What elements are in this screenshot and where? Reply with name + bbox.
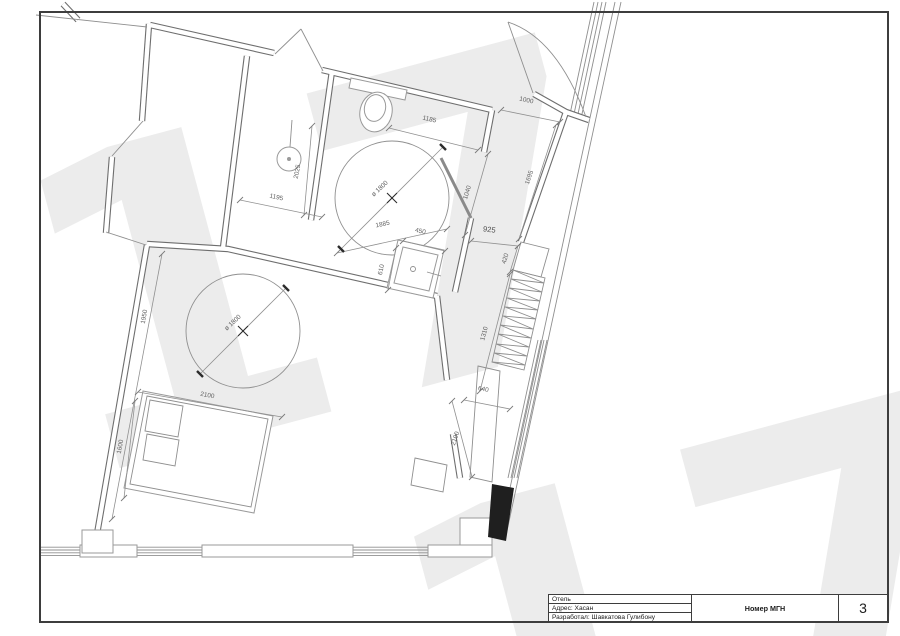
wall-pier <box>428 545 492 557</box>
project-developer: Разработал: Шавкатова Гулибону <box>549 613 691 621</box>
wall-column <box>82 530 113 553</box>
door-leaf-top-left <box>36 15 147 27</box>
sheet-title: Номер МГН <box>692 595 839 621</box>
sheet-number: 3 <box>839 595 887 621</box>
drawing-sheet: 17 17 <box>0 0 900 636</box>
dim-label-925: 925 <box>482 224 496 234</box>
title-block: Отель Адрес: Хасан Разработал: Шавкатова… <box>548 594 888 622</box>
title-block-info: Отель Адрес: Хасан Разработал: Шавкатова… <box>549 595 692 621</box>
wall-corner-step <box>460 518 492 545</box>
project-address: Адрес: Хасан <box>549 604 691 613</box>
project-name: Отель <box>549 595 691 604</box>
wall-pier <box>202 545 353 557</box>
